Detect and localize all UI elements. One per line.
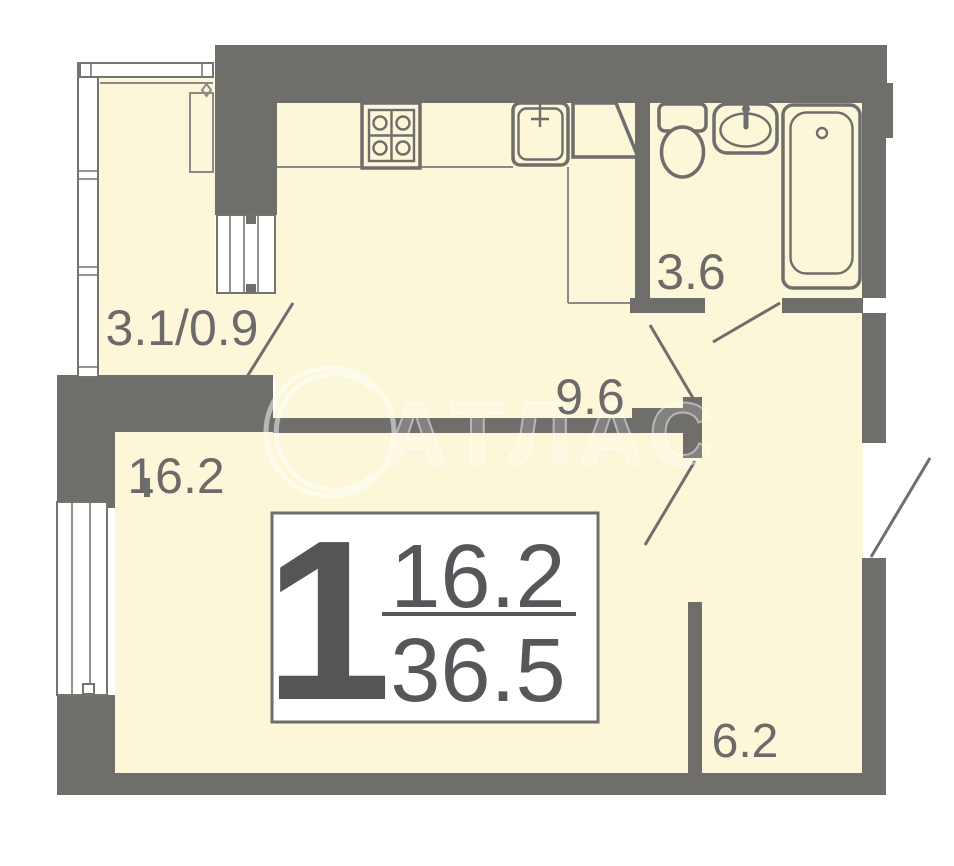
living-label: 16.2 bbox=[127, 448, 224, 504]
watermark-text: АТЛАС bbox=[383, 384, 720, 483]
wall-bath-south-left bbox=[630, 298, 705, 313]
wall-bottom bbox=[115, 773, 886, 795]
wall-right-bump bbox=[886, 83, 893, 138]
room-count: 1 bbox=[265, 494, 392, 748]
bathroom-door-floor bbox=[705, 298, 782, 313]
bathroom-label: 3.6 bbox=[656, 244, 726, 300]
wall-left-lower bbox=[57, 695, 115, 795]
total-area-value: 36.5 bbox=[390, 621, 565, 721]
toilet-icon bbox=[659, 104, 706, 177]
balcony-door-icon bbox=[217, 215, 275, 293]
wall-left-upper bbox=[57, 432, 115, 508]
living-window-icon bbox=[57, 502, 107, 695]
bathtub-icon bbox=[783, 105, 860, 288]
wall-hall-divider bbox=[688, 602, 702, 773]
kitchen-sink-icon bbox=[513, 103, 568, 165]
stove-icon bbox=[362, 103, 420, 168]
balcony-top-window-icon bbox=[80, 63, 213, 77]
wall-balcony-pier bbox=[215, 45, 277, 215]
balcony-side-window-icon bbox=[78, 63, 98, 377]
wall-balcony-south bbox=[57, 375, 273, 432]
washbasin-icon bbox=[714, 104, 777, 153]
hall-label: 6.2 bbox=[712, 715, 779, 768]
wall-bath-west bbox=[635, 103, 650, 298]
wall-top bbox=[215, 45, 887, 103]
wall-bath-south-right bbox=[782, 298, 863, 313]
wall-right-upper bbox=[862, 45, 886, 298]
entrance-door-swing-icon bbox=[871, 458, 930, 557]
info-box: 1 16.2 36.5 bbox=[265, 494, 598, 748]
balcony-label: 3.1/0.9 bbox=[106, 300, 259, 356]
kitchen-label: 9.6 bbox=[555, 369, 625, 425]
floor-plan-page: АТЛАС 1 16.2 36.5 3.1/0.9 9.6 3.6 16.2 6… bbox=[0, 0, 954, 861]
wall-right-mid bbox=[862, 313, 886, 443]
wall-right-lower bbox=[862, 558, 886, 775]
floor-plan: АТЛАС 1 16.2 36.5 3.1/0.9 9.6 3.6 16.2 6… bbox=[0, 0, 954, 861]
